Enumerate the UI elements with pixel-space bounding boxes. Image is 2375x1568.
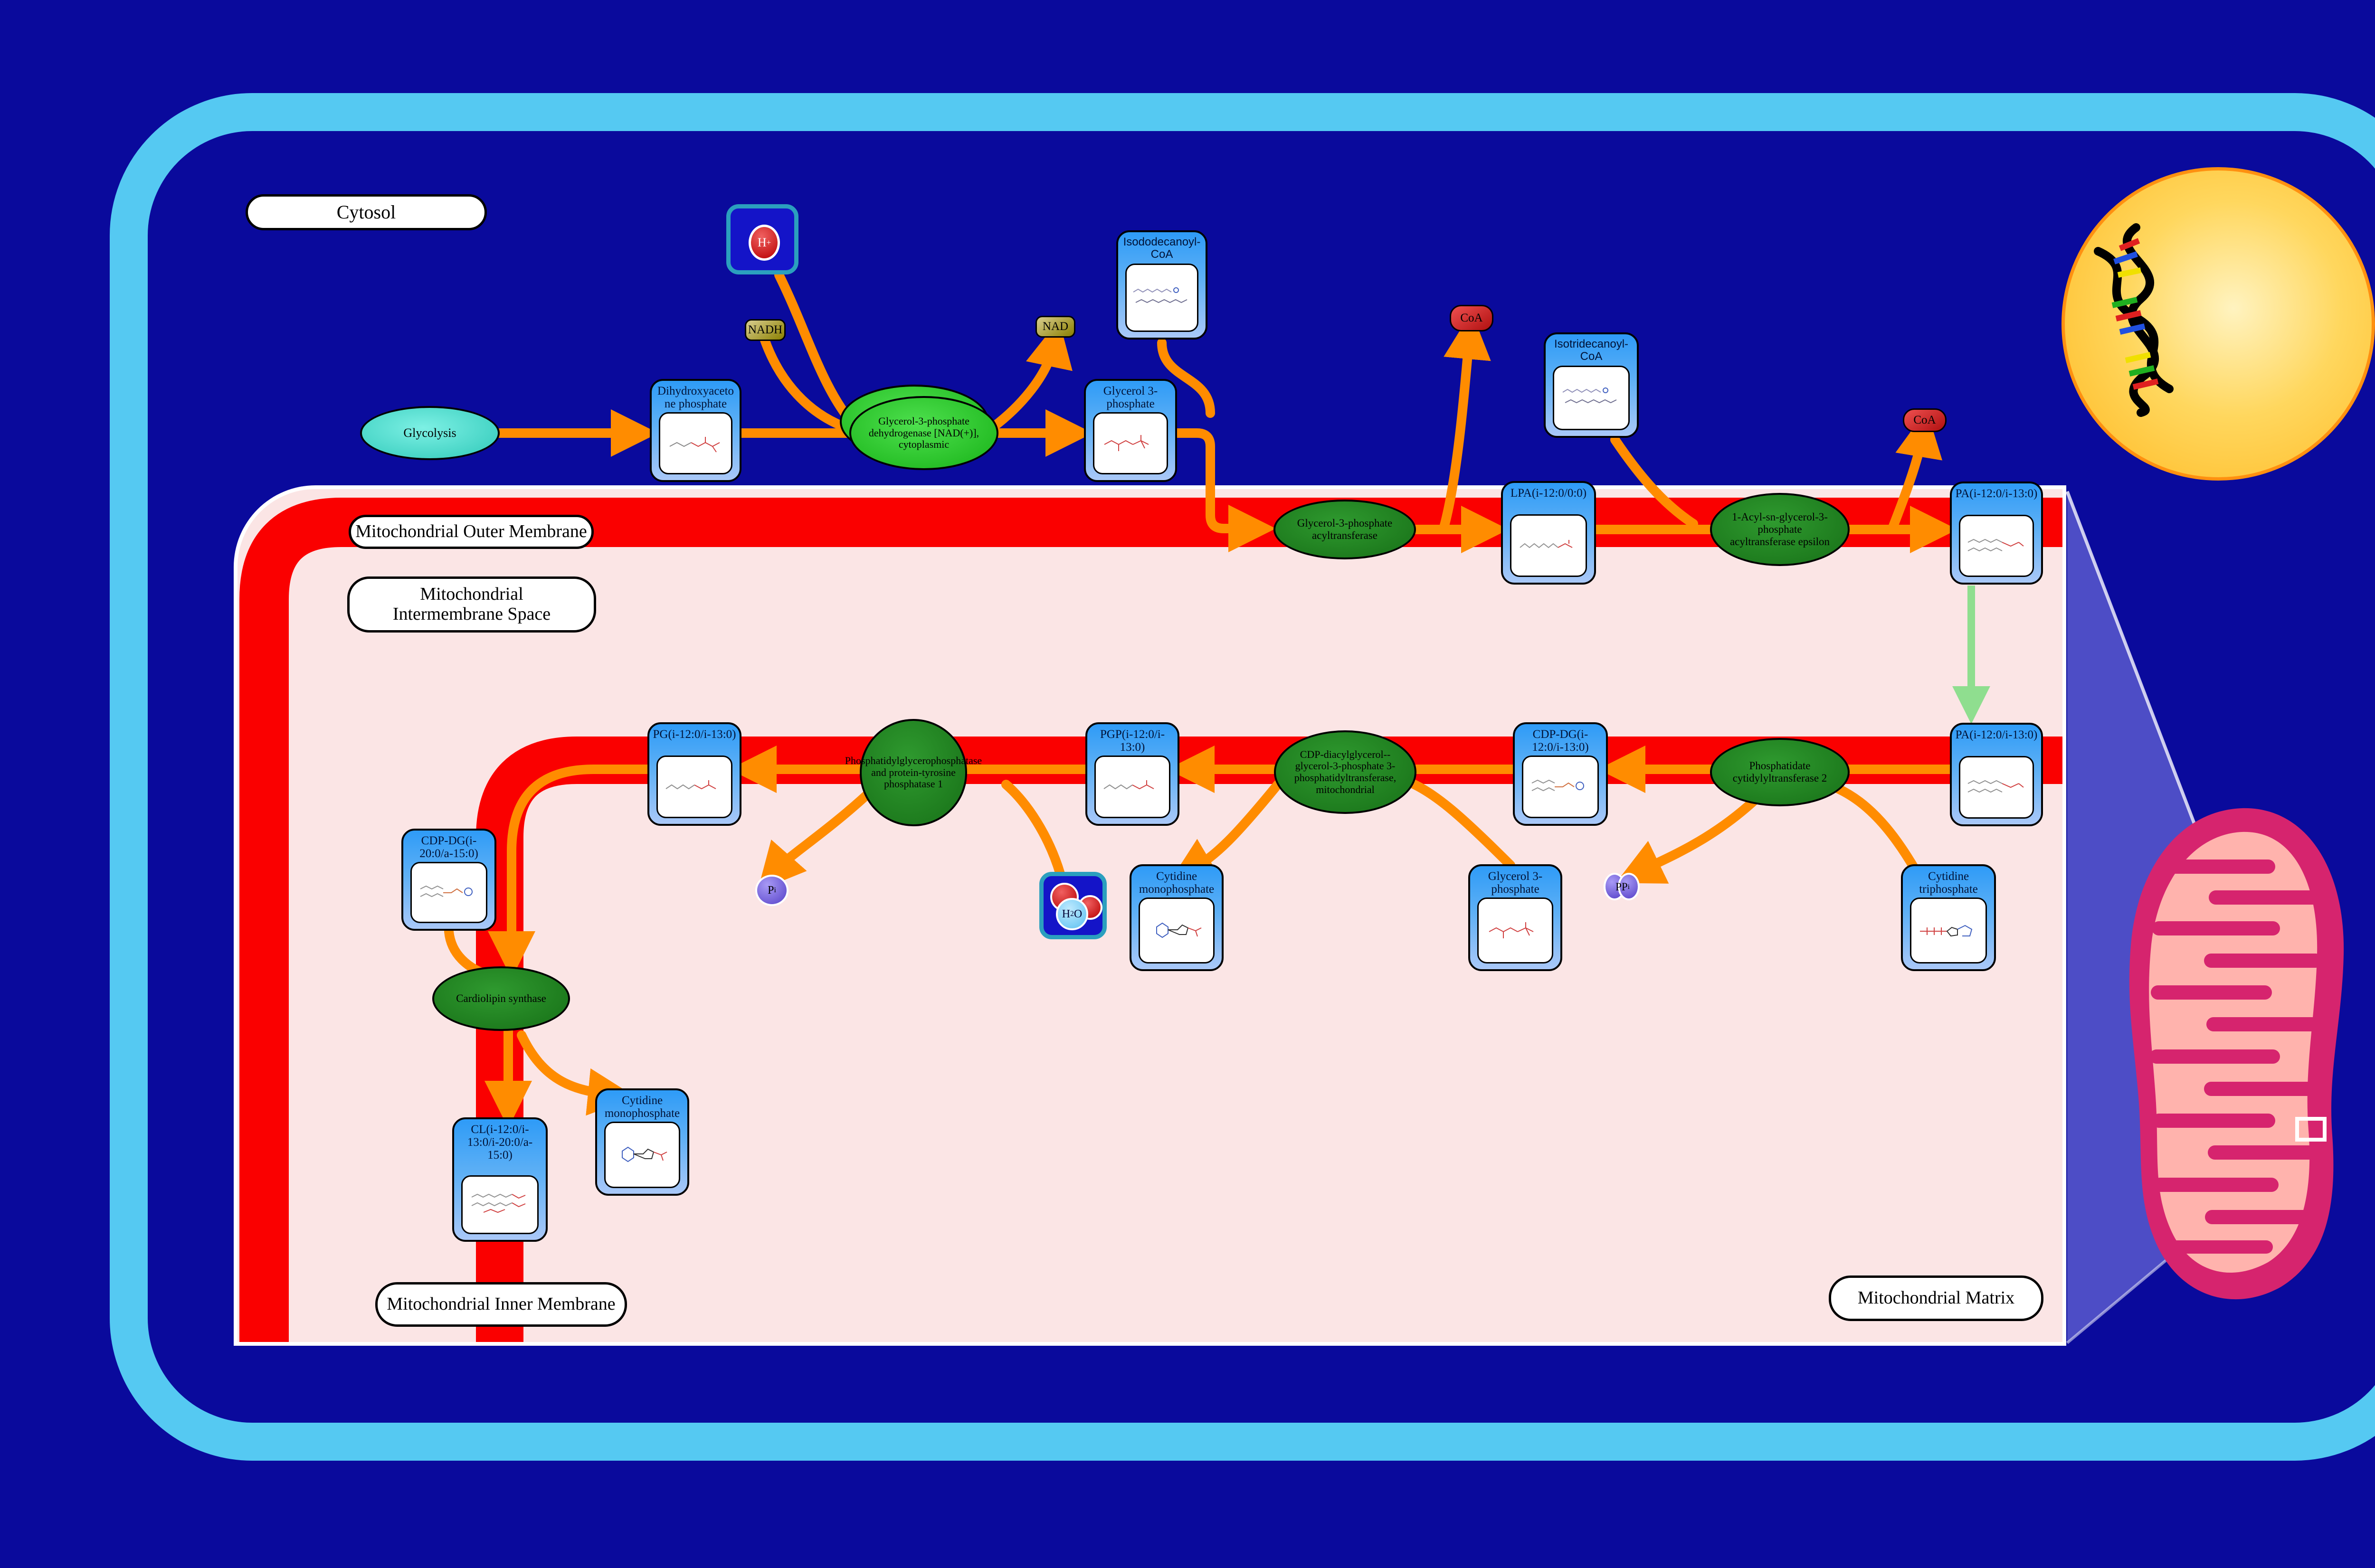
node-cdp-dg[interactable]: CDP-DG(i-12:0/i-13:0) xyxy=(1513,722,1608,826)
chemical-structure-glyph xyxy=(418,882,480,903)
node-cmp-bottom[interactable]: Cytidine monophosphate xyxy=(595,1088,689,1196)
node-coa-left[interactable]: CoA xyxy=(1450,305,1493,331)
node-g3p-cytosol[interactable]: Glycerol 3-phosphate xyxy=(1084,379,1177,482)
node-g3p-matrix[interactable]: Glycerol 3-phosphate xyxy=(1468,864,1562,971)
chemical-structure-glyph xyxy=(1102,433,1159,454)
node-coa-right[interactable]: CoA xyxy=(1903,408,1947,432)
node-cdp-dg-2[interactable]: CDP-DG(i-20:0/a-15:0) xyxy=(401,829,496,931)
node-pi[interactable]: Pi xyxy=(755,875,788,906)
enzyme-gpd-cytoplasmic[interactable]: Glycerol-3-phosphate dehydrogenase [NAD(… xyxy=(849,396,998,470)
node-nadh[interactable]: NADH xyxy=(745,319,786,341)
enzyme-cardiolipin-synthase[interactable]: Cardiolipin synthase xyxy=(432,966,570,1031)
enzyme-gpat[interactable]: Glycerol-3-phosphate acyltransferase xyxy=(1273,500,1416,559)
node-pa-inner[interactable]: PA(i-12:0/i-13:0) xyxy=(1950,723,2043,826)
chemical-structure-glyph xyxy=(1966,536,2027,557)
cytosol-label: Cytosol xyxy=(246,194,487,230)
chemical-structure-glyph xyxy=(469,1191,531,1218)
matrix-label: Mitochondrial Matrix xyxy=(1829,1275,2043,1321)
inner-membrane-label: Mitochondrial Inner Membrane xyxy=(375,1282,627,1327)
chemical-structure-glyph xyxy=(1487,920,1544,941)
node-h2o[interactable]: H2O xyxy=(1039,872,1107,939)
chemical-structure-glyph xyxy=(1102,777,1163,796)
node-h-plus[interactable]: H+ xyxy=(726,204,798,274)
node-cmp-matrix[interactable]: Cytidine monophosphate xyxy=(1130,864,1224,971)
node-isododecanoyl-coa[interactable]: Isododecanoyl-CoA xyxy=(1116,230,1207,340)
pathway-diagram-canvas: Cytosol Mitochondrial Outer Membrane Mit… xyxy=(0,0,2375,1568)
enzyme-pct2[interactable]: Phosphatidate cytidylyltransferase 2 xyxy=(1710,738,1850,806)
chemical-structure-glyph xyxy=(664,777,725,796)
chemical-structure-glyph xyxy=(1518,537,1579,554)
proton-symbol: H+ xyxy=(749,225,780,261)
chemical-structure-glyph xyxy=(667,433,724,454)
intermembrane-space-label: Mitochondrial Intermembrane Space xyxy=(347,576,596,633)
node-nad[interactable]: NAD xyxy=(1035,316,1075,338)
chemical-structure-glyph xyxy=(614,1141,671,1169)
node-isotridecanoyl-coa[interactable]: Isotridecanoyl-CoA xyxy=(1544,332,1639,438)
water-molecule-label: H2O xyxy=(1056,898,1088,930)
node-cl[interactable]: CL(i-12:0/i-13:0/i-20:0/a-15:0) xyxy=(452,1117,548,1242)
chemical-structure-glyph xyxy=(1560,384,1622,412)
enzyme-cdgs[interactable]: CDP-diacylglycerol--glycerol-3-phosphate… xyxy=(1274,730,1416,814)
node-pa-outer[interactable]: PA(i-12:0/i-13:0) xyxy=(1950,482,2043,585)
node-ctp[interactable]: Cytidine triphosphate xyxy=(1901,864,1996,971)
chemical-structure-glyph xyxy=(1131,283,1193,312)
enzyme-agpat-epsilon[interactable]: 1-Acyl-sn-glycerol-3-phosphate acyltrans… xyxy=(1710,493,1850,566)
node-lpa[interactable]: LPA(i-12:0/0:0) xyxy=(1501,481,1596,585)
glycolysis-node[interactable]: Glycolysis xyxy=(360,406,500,460)
chemical-structure-glyph xyxy=(1918,919,1979,943)
node-pgp[interactable]: PGP(i-12:0/i-13:0) xyxy=(1085,722,1179,826)
chemical-structure-glyph xyxy=(1148,916,1205,945)
outer-membrane-label: Mitochondrial Outer Membrane xyxy=(349,515,594,549)
chemical-structure-glyph xyxy=(1966,777,2027,798)
node-dhap[interactable]: Dihydroxyacetone phosphate xyxy=(650,379,741,482)
node-pg[interactable]: PG(i-12:0/i-13:0) xyxy=(647,722,741,826)
chemical-structure-glyph xyxy=(1529,776,1591,797)
node-ppi[interactable]: PPi xyxy=(1604,873,1642,901)
enzyme-pgpase[interactable]: Phosphatidylglycerophosphatase and prote… xyxy=(860,719,967,826)
